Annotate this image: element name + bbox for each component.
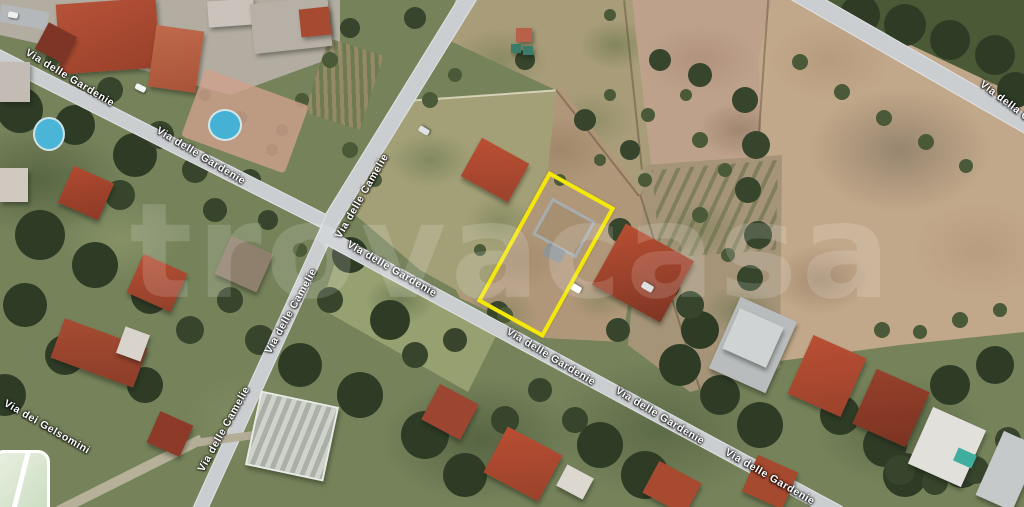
street-label: Via delle Gardenie	[723, 446, 817, 507]
satellite-map: Via delle GardenieVia delle GardenieVia …	[0, 0, 1024, 507]
street-label: Via delle Gardenie	[613, 385, 706, 448]
street-label: Via delle Gardenie	[23, 47, 116, 110]
street-labels: Via delle GardenieVia delle GardenieVia …	[0, 0, 1024, 507]
street-label: Via della C	[978, 78, 1024, 123]
street-label: Via delle Camelie	[263, 266, 320, 356]
map-inset-road-line	[7, 450, 31, 507]
street-label: Via dei Gelsomini	[2, 397, 92, 456]
street-label: Via delle Gardenie	[345, 238, 439, 299]
street-label: Via delle Gardenie	[504, 326, 597, 389]
map-inset-thumbnail	[0, 450, 50, 507]
street-label: Via delle Camelie	[196, 384, 253, 474]
street-label: Via delle Camelie	[333, 152, 391, 241]
street-label: Via delle Gardenie	[154, 125, 247, 188]
